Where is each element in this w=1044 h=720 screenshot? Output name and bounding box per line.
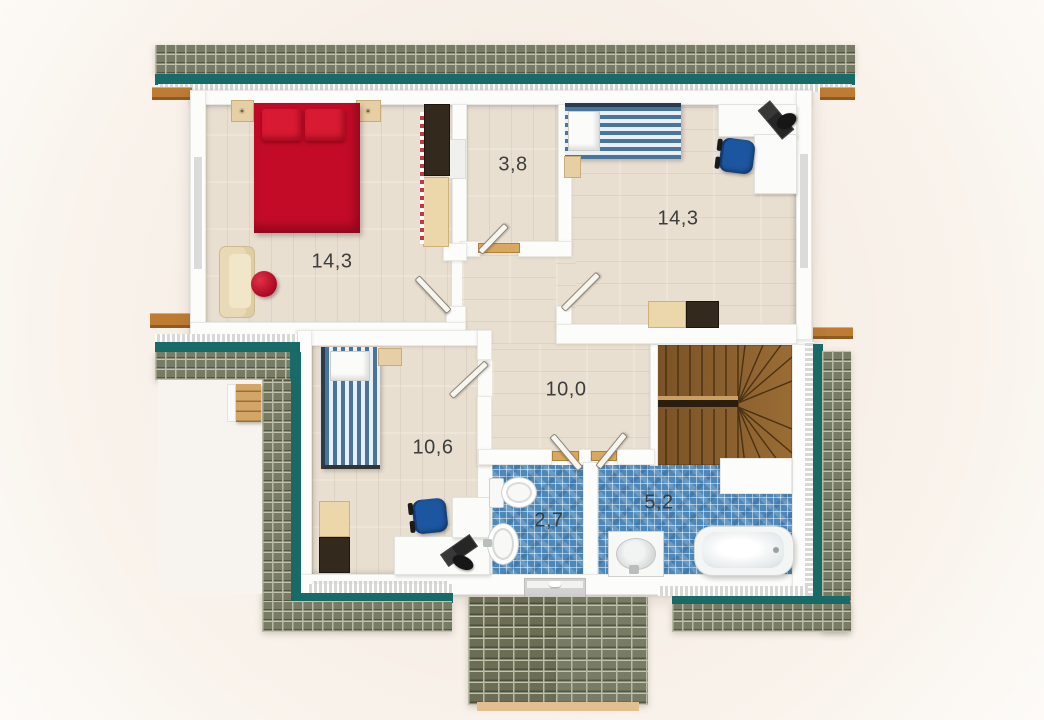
window-left-bedroom [192,157,204,269]
stairs-left-stringer [650,344,658,466]
bed-pillow [262,109,302,141]
dormer-shelf-wood [236,384,261,422]
vanity-tap [629,565,639,574]
roof-bottomleft-tiles [262,601,452,632]
floor-plan-canvas: 14,3 3,8 14,3 10,0 10,6 2,7 5,2 [0,0,1044,720]
staircase [655,345,792,465]
cabinet-light-bedroom-lower [319,501,350,537]
roof-strip-top-tiles [155,45,855,75]
bed-pillow [568,111,600,151]
sofa [219,246,255,318]
wood-beam-mid-right [813,327,853,339]
cabinet-light-bedroom-right [648,301,686,328]
wall-wc-top-left [478,449,552,465]
hallway-floor-upper [462,244,562,344]
toilet-bowl [501,477,537,508]
wall-bath-top-right [617,449,655,465]
dormer-shelf-white-edge [227,384,236,422]
bathtub-basin [702,532,784,568]
wood-beam-top-right [820,87,855,100]
wc-basin-tap [483,539,492,547]
roof-bottomright-eave [658,586,808,596]
nightstand-knob [239,108,245,114]
wood-beam-mid-left [150,313,193,328]
area-label-hallway: 10,0 [546,379,587,402]
bathtub [694,526,794,576]
wall-bedroomlower-top [297,330,480,346]
area-label-bedroom-right: 14,3 [658,208,699,231]
roof-right-tiles-v [822,351,851,632]
area-label-closet: 3,8 [498,154,527,177]
bed-pillow [305,109,345,141]
office-chair-blue [718,137,756,175]
single-bed-striped-lower-bedroom [321,347,380,469]
dormer-roof-tiles-right [556,597,648,705]
pouf-red [251,271,277,297]
dormer-hatch-step [524,578,586,598]
wall-wc-bath-divider [583,462,598,575]
nightstand-bedroom-right [564,156,581,178]
nightstand-bedroom-lower [378,348,402,366]
roof-bottomright-tiles [672,604,850,632]
bed-pillow [330,351,370,381]
wall-closet-bottom-right [518,241,572,257]
roof-left-tiles-v [262,379,291,603]
wardrobe-striped-edge [420,112,424,244]
cabinet-dark-bedroom-lower [319,537,350,573]
wardrobe-dark-section [424,104,450,176]
roof-left-tiles-h [155,352,298,380]
wardrobe-light-section [423,177,449,247]
area-label-bedroom-left: 14,3 [312,251,353,274]
window-right-bedroom [798,154,810,268]
desk-side-bar-lower [452,497,490,538]
roof-left-teal-v [290,352,301,604]
dormer-fascia-tan [477,702,639,711]
sofa-seat [229,254,251,308]
wall-stairs-bath-corner [720,458,792,494]
bathtub-drain [773,547,779,553]
staircase-drawing [655,345,792,465]
double-bed-red [254,103,360,233]
dormer-roof-tiles-left [468,597,556,705]
single-bed-striped-right-bedroom [565,103,681,159]
cabinet-dark-bedroom-right [686,301,719,328]
hallway-floor-lower [492,344,655,460]
wall-bedroomlower-right-upper [477,330,492,360]
wood-beam-top-left [152,87,192,100]
area-label-bedroom-lower: 10,6 [413,437,454,460]
office-chair-blue-lower [411,497,448,534]
area-label-bathroom: 5,2 [644,492,673,515]
nightstand-left [231,100,254,122]
dormer-hatch-handle [549,581,561,587]
nightstand-knob [365,108,371,114]
area-label-wc: 2,7 [534,510,563,533]
desk-side-bar [754,134,797,194]
